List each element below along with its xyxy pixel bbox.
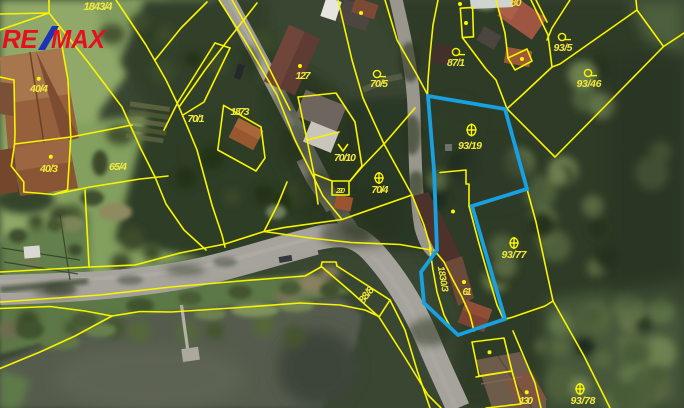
svg-text:93/77: 93/77 (502, 249, 528, 261)
svg-text:MAX: MAX (51, 24, 107, 54)
svg-text:70/1: 70/1 (188, 113, 205, 125)
svg-text:65/4: 65/4 (109, 161, 127, 173)
svg-text:80: 80 (511, 0, 522, 9)
svg-text:70/10: 70/10 (334, 152, 356, 164)
svg-text:127: 127 (296, 70, 312, 82)
svg-text:1843/4: 1843/4 (84, 1, 113, 13)
svg-text:93/78: 93/78 (571, 395, 596, 407)
svg-text:40/4: 40/4 (29, 83, 48, 95)
svg-text:93/46: 93/46 (577, 78, 602, 90)
svg-text:1873: 1873 (231, 106, 250, 118)
svg-text:220: 220 (335, 186, 346, 195)
svg-text:93/19: 93/19 (458, 140, 482, 152)
svg-text:RE: RE (2, 24, 38, 54)
svg-text:61: 61 (463, 287, 472, 298)
svg-text:93/5: 93/5 (554, 42, 573, 54)
svg-text:70/4: 70/4 (372, 184, 389, 196)
svg-text:40/3: 40/3 (39, 163, 58, 175)
svg-text:70/5: 70/5 (370, 78, 388, 90)
svg-text:87/1: 87/1 (447, 57, 465, 69)
svg-text:130: 130 (519, 395, 533, 407)
